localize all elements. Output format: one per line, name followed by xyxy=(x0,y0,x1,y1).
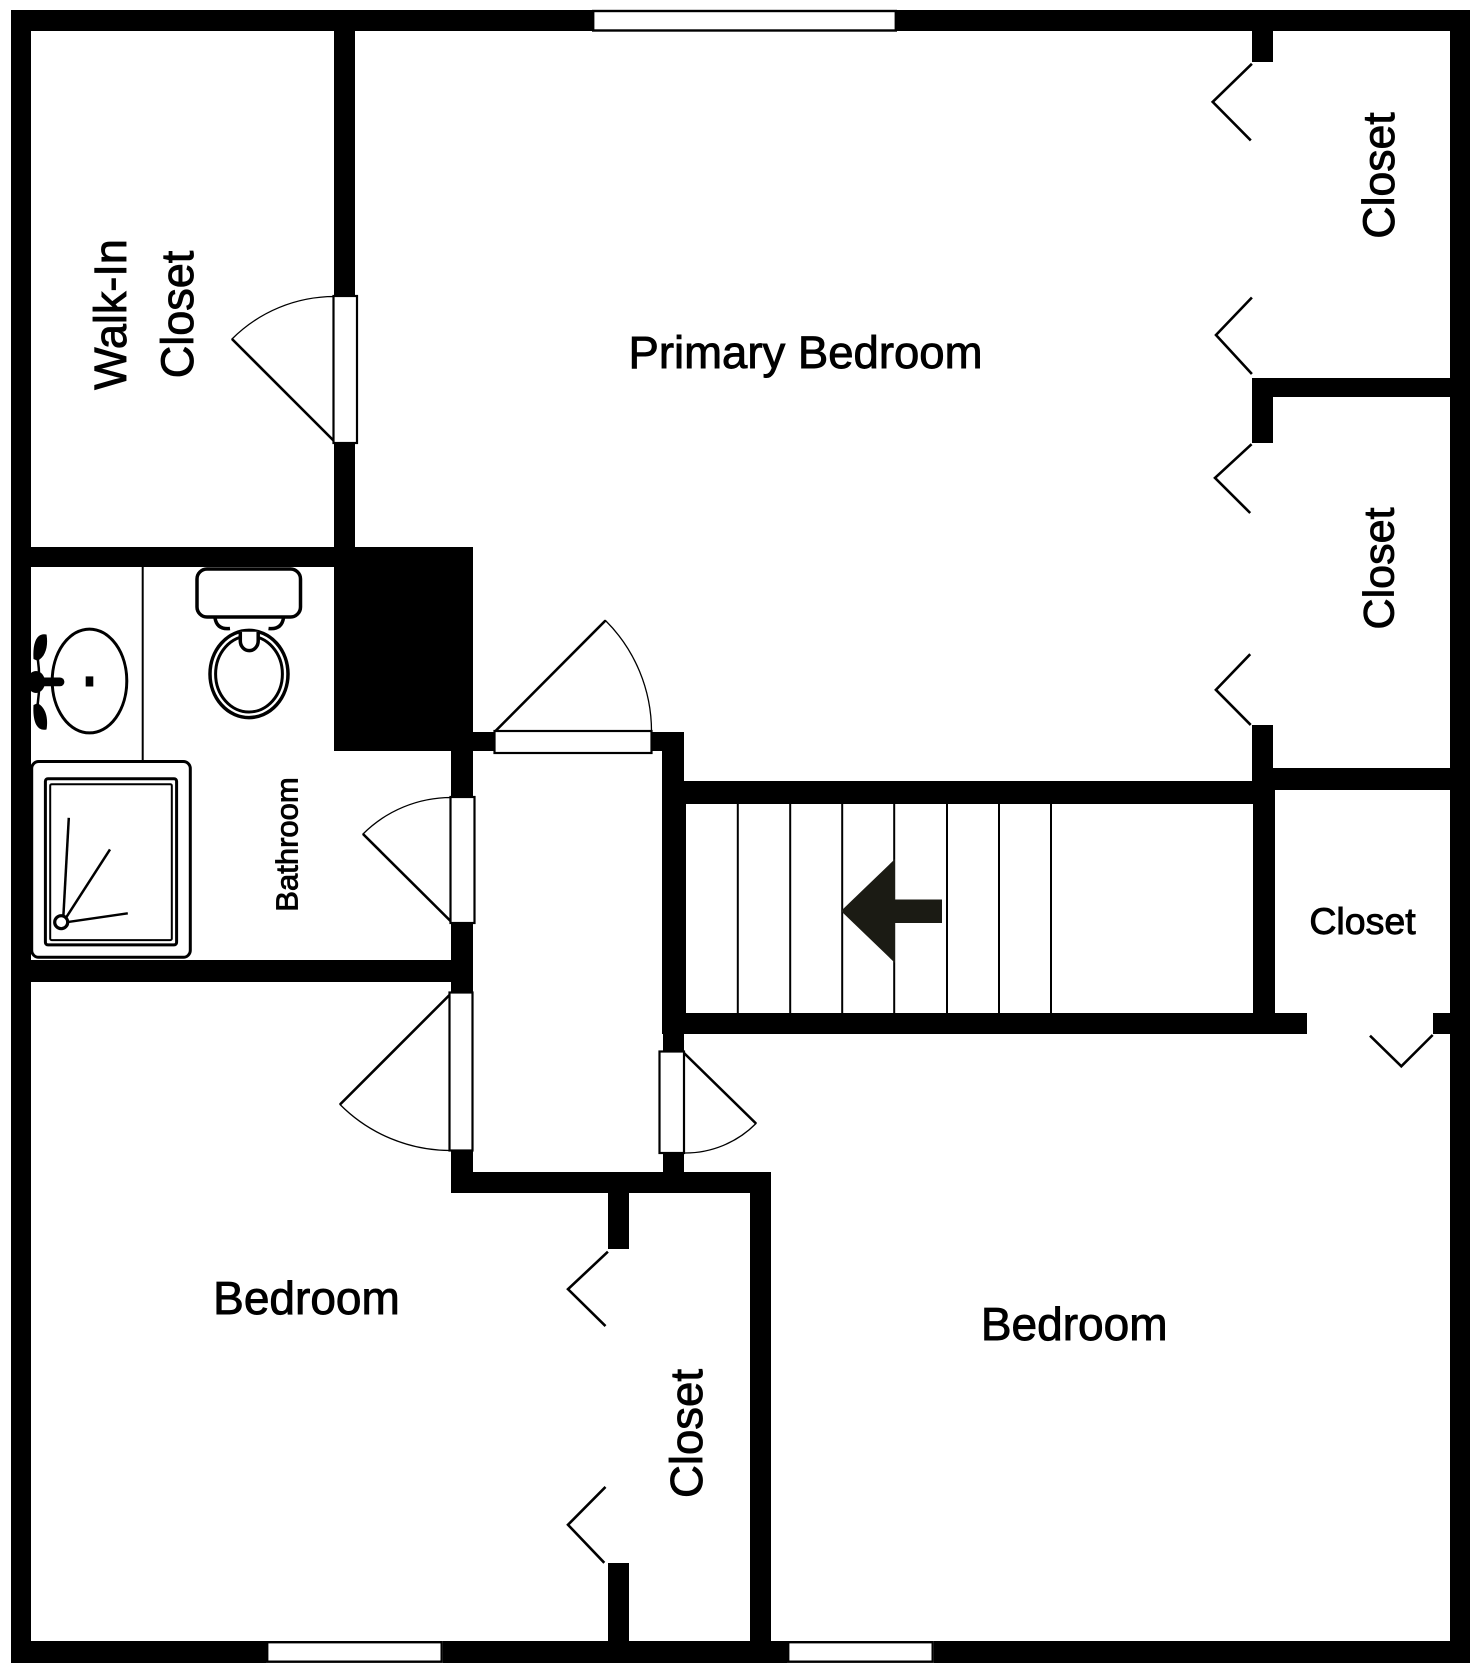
svg-text:Bedroom: Bedroom xyxy=(213,1272,400,1324)
svg-text:Closet: Closet xyxy=(152,250,203,378)
svg-text:Closet: Closet xyxy=(1356,508,1404,630)
svg-text:Primary Bedroom: Primary Bedroom xyxy=(629,327,983,378)
svg-text:Walk-In: Walk-In xyxy=(85,239,136,390)
svg-text:Closet: Closet xyxy=(661,1369,712,1498)
svg-text:Bathroom: Bathroom xyxy=(270,777,305,911)
svg-text:Bedroom: Bedroom xyxy=(981,1298,1168,1350)
svg-text:Closet: Closet xyxy=(1355,112,1404,239)
svg-text:Closet: Closet xyxy=(1309,900,1416,942)
